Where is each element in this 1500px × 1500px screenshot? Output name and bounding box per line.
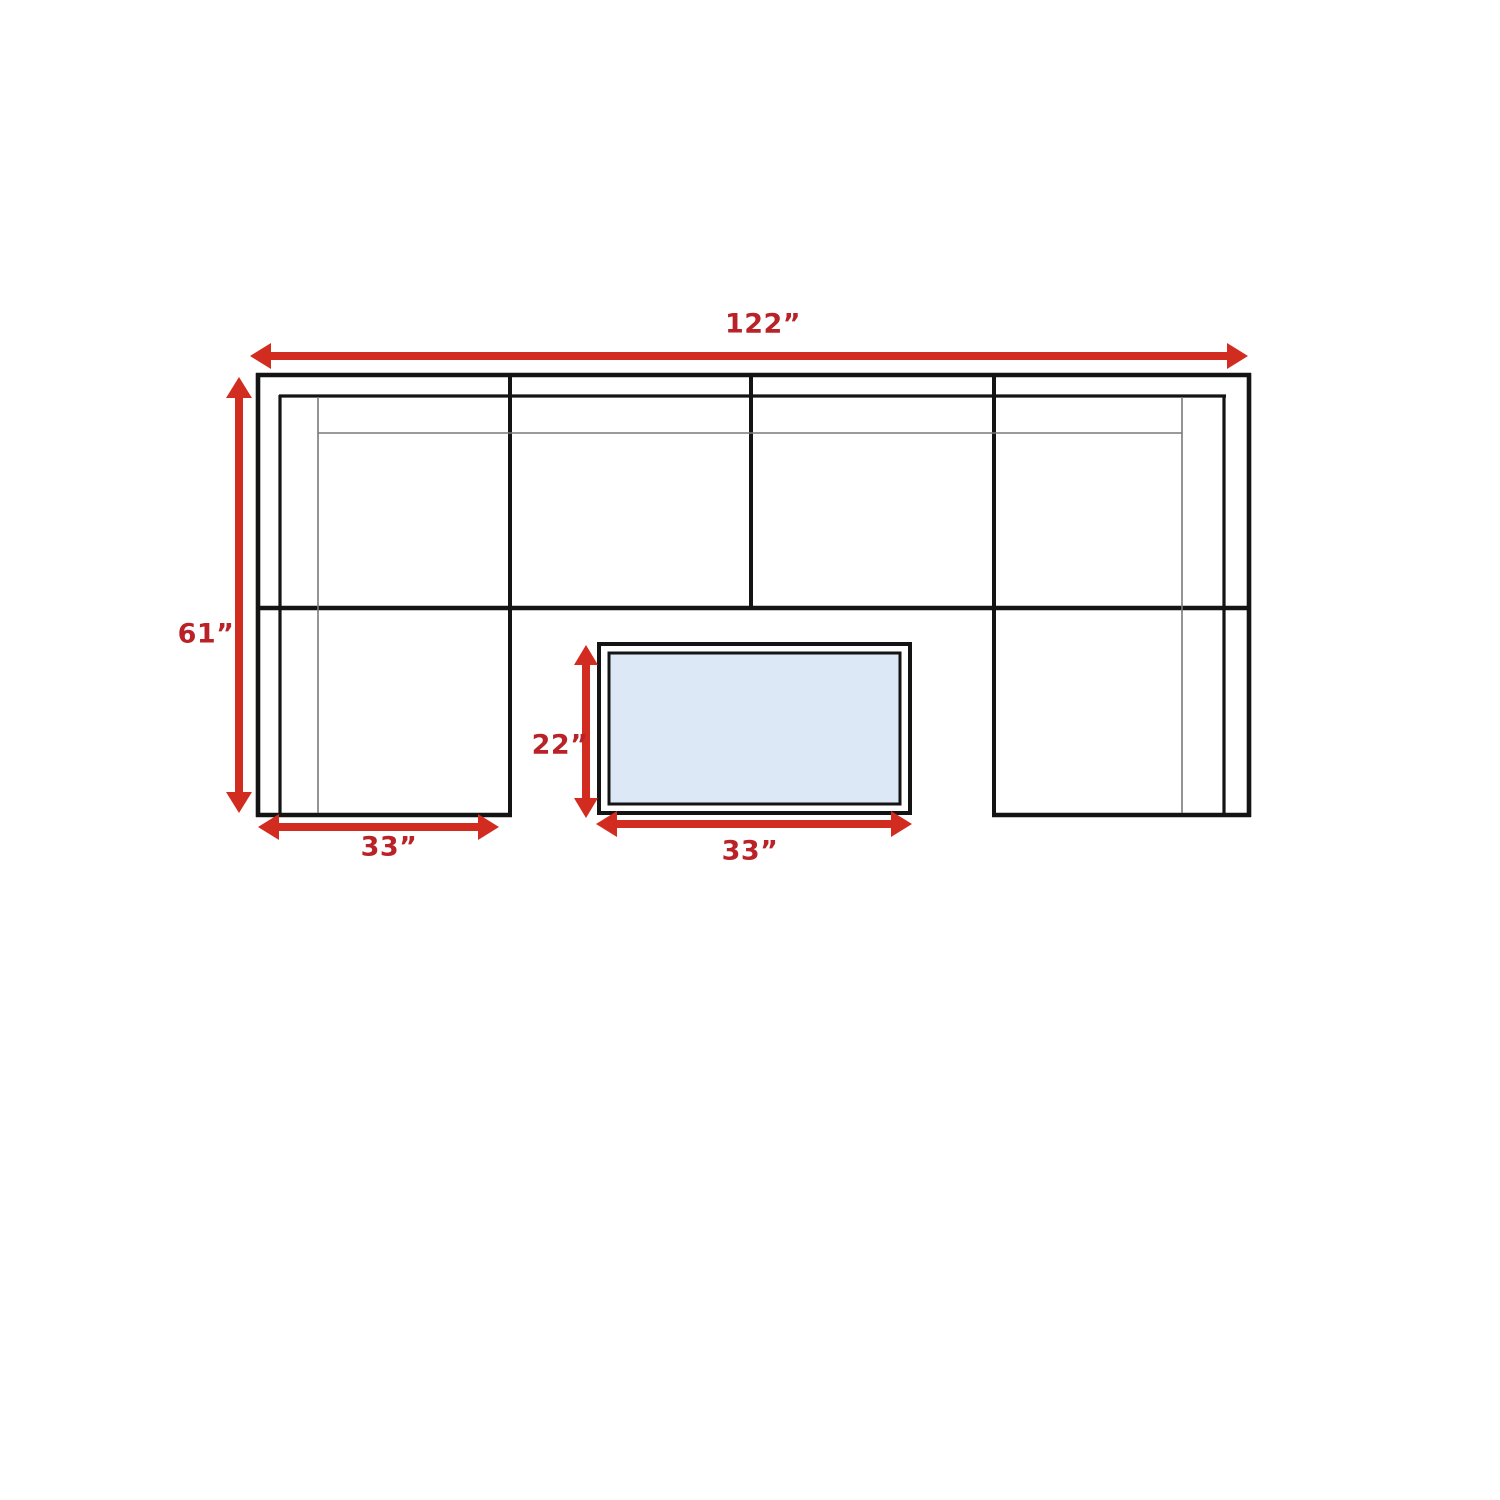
sofa-dimension-diagram: 122” 61” 33” 22” 33” — [0, 0, 1500, 1500]
overall-depth-dimension-arrow — [226, 377, 252, 813]
overall-width-dimension-arrow — [250, 343, 1248, 369]
overall-width-label: 122” — [725, 309, 801, 340]
coffee-table — [599, 644, 910, 813]
overall-depth-label: 61” — [178, 619, 235, 650]
coffee-table-glass-top — [609, 653, 900, 804]
table-depth-label: 22” — [532, 730, 589, 761]
left-chaise-width-label: 33” — [361, 832, 418, 863]
diagram-graphics — [0, 0, 1500, 1500]
table-width-label: 33” — [722, 836, 779, 867]
